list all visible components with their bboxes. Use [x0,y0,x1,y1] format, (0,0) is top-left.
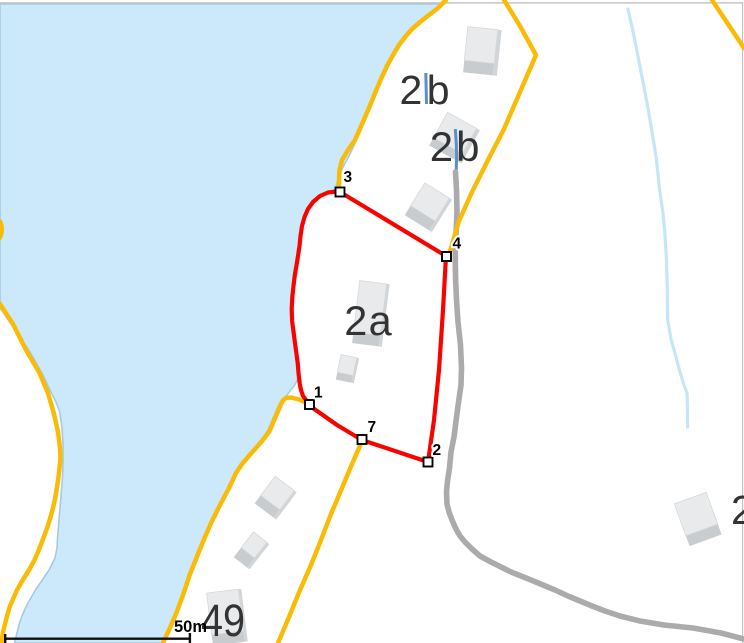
svg-text:1: 1 [314,385,323,402]
svg-text:3: 3 [344,169,353,186]
svg-text:2: 2 [731,487,744,533]
svg-text:4: 4 [453,236,462,253]
svg-text:2a: 2a [344,297,393,344]
svg-text:49: 49 [201,596,245,643]
svg-text:2b: 2b [400,67,455,113]
svg-text:2: 2 [433,442,442,459]
svg-text:2b: 2b [430,123,483,170]
svg-text:7: 7 [368,419,377,436]
